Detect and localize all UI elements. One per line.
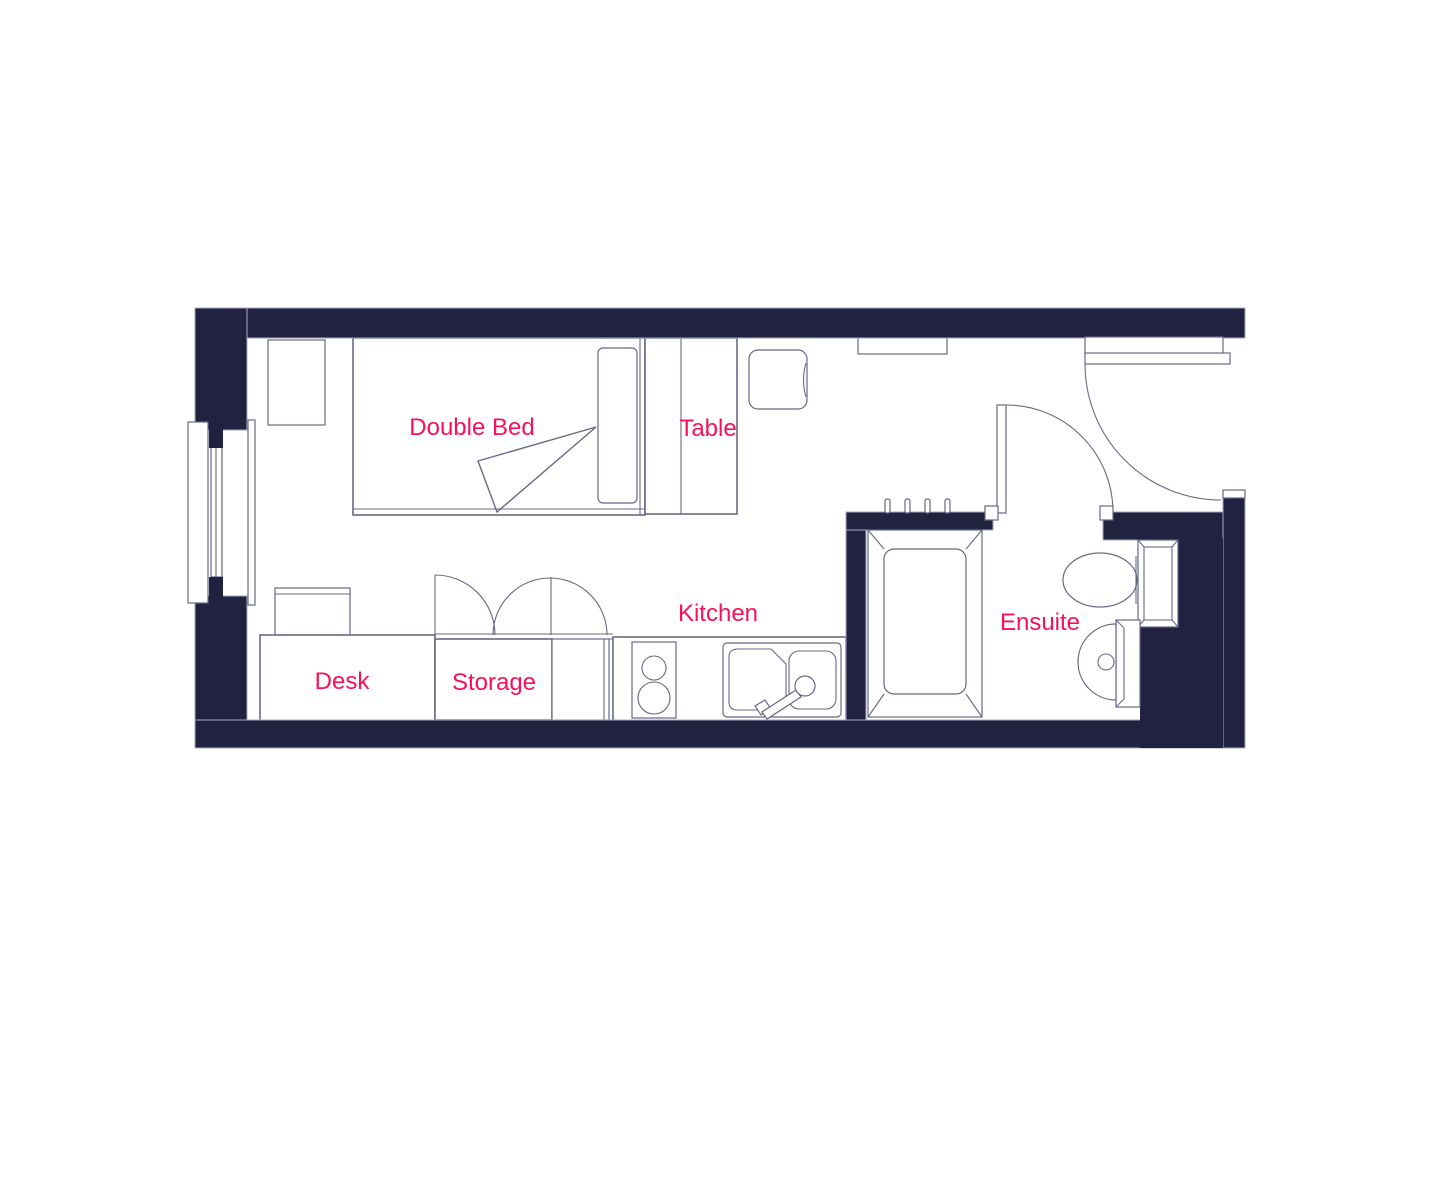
towel-hook-icon [885, 499, 890, 513]
ensuite-door-jamb-left [985, 506, 998, 520]
chair [749, 350, 807, 409]
window [188, 420, 255, 605]
wall-ensuite-top-right [1103, 512, 1223, 540]
floorplan-page: Double Bed Table Kitchen Desk Storage En… [0, 0, 1440, 1200]
shower-tray [884, 549, 966, 694]
storage-door-arc-right [493, 578, 607, 635]
basin [1078, 620, 1140, 707]
ensuite-door-leaf [997, 405, 1006, 513]
wall-ensuite-top-left [846, 512, 993, 530]
bedroom-furniture [268, 337, 947, 515]
towel-hooks [885, 499, 950, 513]
window-stub-top [209, 428, 223, 448]
wall-bottom [195, 720, 1245, 748]
window-sill [188, 422, 208, 603]
toilet [1063, 540, 1178, 627]
window-inner-frame [248, 420, 255, 605]
basin-bowl [1078, 624, 1116, 700]
ensuite-door-jamb-right [1100, 506, 1113, 520]
label-ensuite: Ensuite [1000, 609, 1080, 636]
entry-door-jamb [1223, 490, 1245, 498]
wall-top [195, 308, 1245, 338]
bed-pillow [598, 348, 637, 503]
wall-ensuite-left [846, 512, 866, 720]
storage-door-arc-left [435, 575, 495, 635]
ensuite-door [985, 405, 1113, 520]
wall-shelf [858, 337, 947, 354]
window-stub-bottom [209, 577, 223, 597]
entry-door-swing-arc [1085, 364, 1221, 500]
wall-left-upper [195, 308, 247, 430]
basin-counter [1116, 620, 1140, 707]
towel-hook-icon [945, 499, 950, 513]
wall-right [1223, 497, 1245, 748]
entry-door-leaf [1085, 353, 1230, 364]
desk-storage-area [260, 575, 613, 722]
label-double-bed: Double Bed [409, 414, 534, 441]
desk-chair [275, 588, 350, 635]
shower [868, 530, 982, 717]
label-storage: Storage [452, 669, 536, 696]
entry-door [1085, 337, 1245, 500]
towel-hook-icon [925, 499, 930, 513]
wall-ensuite-right-upper [1178, 538, 1223, 630]
towel-hook-icon [905, 499, 910, 513]
bedside-table [268, 340, 325, 425]
toilet-bowl [1063, 553, 1137, 607]
label-kitchen: Kitchen [678, 600, 758, 627]
label-desk: Desk [315, 668, 371, 695]
entry-door-lintel [1085, 337, 1223, 354]
kitchen-area [613, 637, 846, 722]
floorplan-svg: Double Bed Table Kitchen Desk Storage En… [0, 0, 1440, 1200]
kitchen-tap-head [795, 676, 815, 696]
storage-unit-small [552, 639, 609, 720]
wall-ensuite-right-lower [1140, 626, 1223, 748]
label-table: Table [679, 415, 736, 442]
